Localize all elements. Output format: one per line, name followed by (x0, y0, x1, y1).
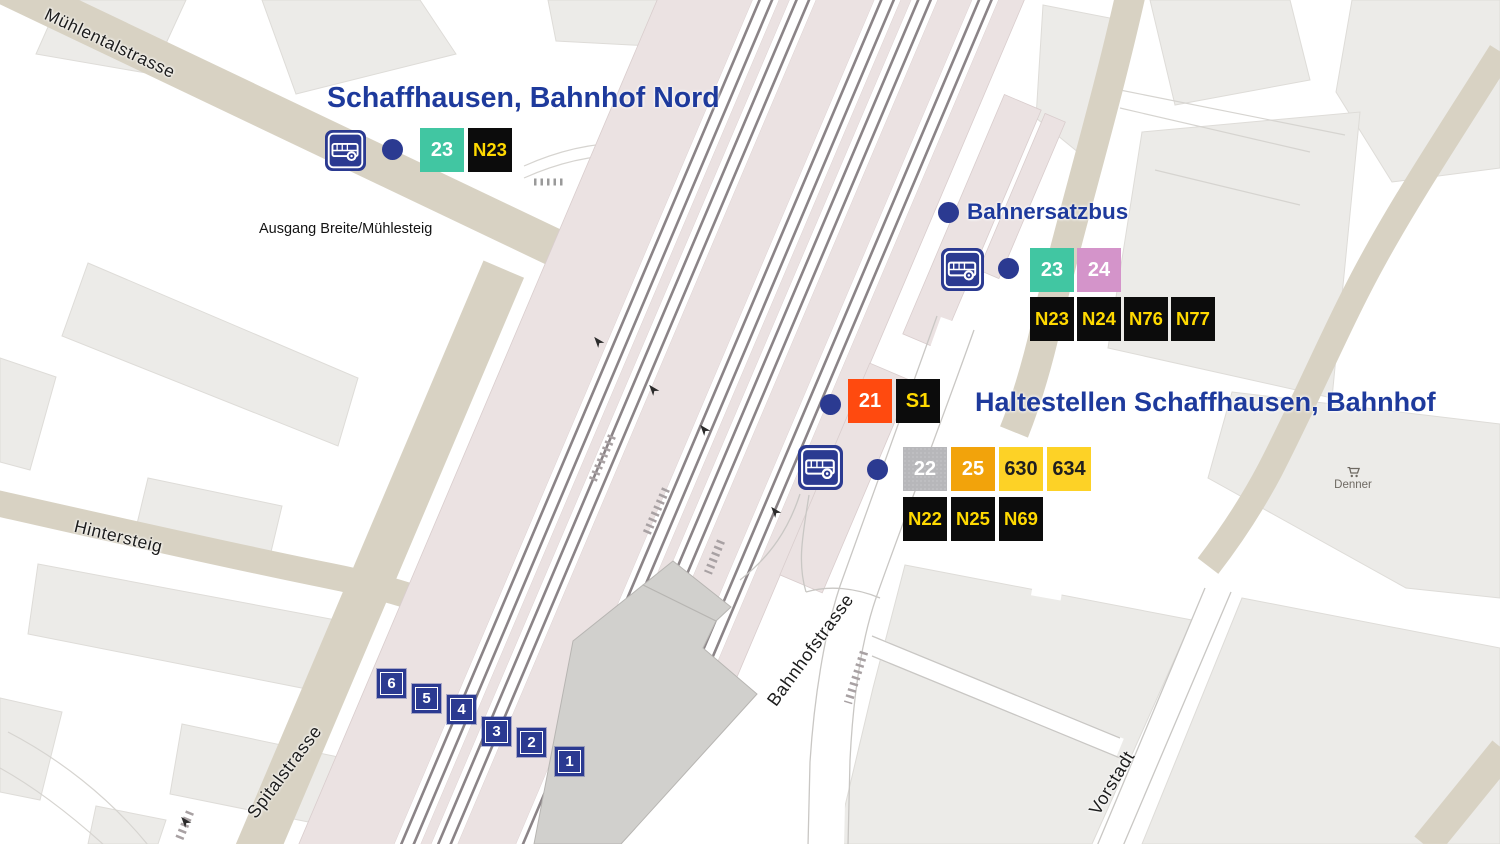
line-badge-n77[interactable]: N77 (1171, 297, 1215, 341)
platform-marker-2: 2 (517, 728, 546, 757)
line-badge-23[interactable]: 23 (420, 128, 464, 172)
line-badge-634[interactable]: 634 (1047, 447, 1091, 491)
platform-marker-3: 3 (482, 717, 511, 746)
poi-denner: Denner (1330, 467, 1376, 492)
bus-stop-icon-main[interactable] (798, 445, 843, 490)
line-badge-n25[interactable]: N25 (951, 497, 995, 541)
stop-title-bahnersatzbus: Bahnersatzbus (967, 199, 1128, 225)
stop-location-dot-main (867, 459, 888, 480)
line-badges-main-night: N22 N25 N69 (903, 497, 1043, 541)
stop-title-bahnhof-nord: Schaffhausen, Bahnhof Nord (327, 82, 720, 115)
poi-denner-label: Denner (1334, 479, 1372, 491)
line-badges-rail: 21 S1 (848, 379, 940, 423)
stop-location-dot-rail (820, 394, 841, 415)
line-badge-n24[interactable]: N24 (1077, 297, 1121, 341)
line-badge-n76[interactable]: N76 (1124, 297, 1168, 341)
line-badges-bahnersatz-day: 23 24 (1030, 248, 1121, 292)
stop-location-dot-nord (382, 139, 403, 160)
line-badges-bahnersatz-night: N23 N24 N76 N77 (1030, 297, 1215, 341)
line-badge-25[interactable]: 25 (951, 447, 995, 491)
line-badge-n23[interactable]: N23 (468, 128, 512, 172)
stop-location-dot-bahnersatz (998, 258, 1019, 279)
line-badge-24[interactable]: 24 (1077, 248, 1121, 292)
platform-marker-1: 1 (555, 747, 584, 776)
line-badge-n69[interactable]: N69 (999, 497, 1043, 541)
shopping-cart-icon (1347, 467, 1360, 478)
bus-stop-icon-bahnersatz[interactable] (941, 248, 984, 291)
station-map: Mühlentalstrasse Hintersteig Spitalstras… (0, 0, 1500, 844)
line-badge-23-ersatz[interactable]: 23 (1030, 248, 1074, 292)
stop-location-dot-bahnersatz-label (938, 202, 959, 223)
platform-marker-4: 4 (447, 695, 476, 724)
exit-label-breite-muehlesteig: Ausgang Breite/Mühlesteig (259, 221, 432, 237)
line-badge-n23-ersatz[interactable]: N23 (1030, 297, 1074, 341)
line-badge-630[interactable]: 630 (999, 447, 1043, 491)
bus-stop-icon-nord[interactable] (325, 130, 366, 171)
map-background (0, 0, 1500, 844)
line-badge-n22[interactable]: N22 (903, 497, 947, 541)
platform-marker-5: 5 (412, 684, 441, 713)
platform-marker-6: 6 (377, 669, 406, 698)
line-badges-main-day: 22 25 630 634 (903, 447, 1091, 491)
line-badge-22[interactable]: 22 (903, 447, 947, 491)
line-badge-21[interactable]: 21 (848, 379, 892, 423)
line-badge-s1[interactable]: S1 (896, 379, 940, 423)
stop-title-haltestellen-bahnhof: Haltestellen Schaffhausen, Bahnhof (975, 387, 1436, 418)
line-badges-nord: 23 N23 (420, 128, 512, 172)
